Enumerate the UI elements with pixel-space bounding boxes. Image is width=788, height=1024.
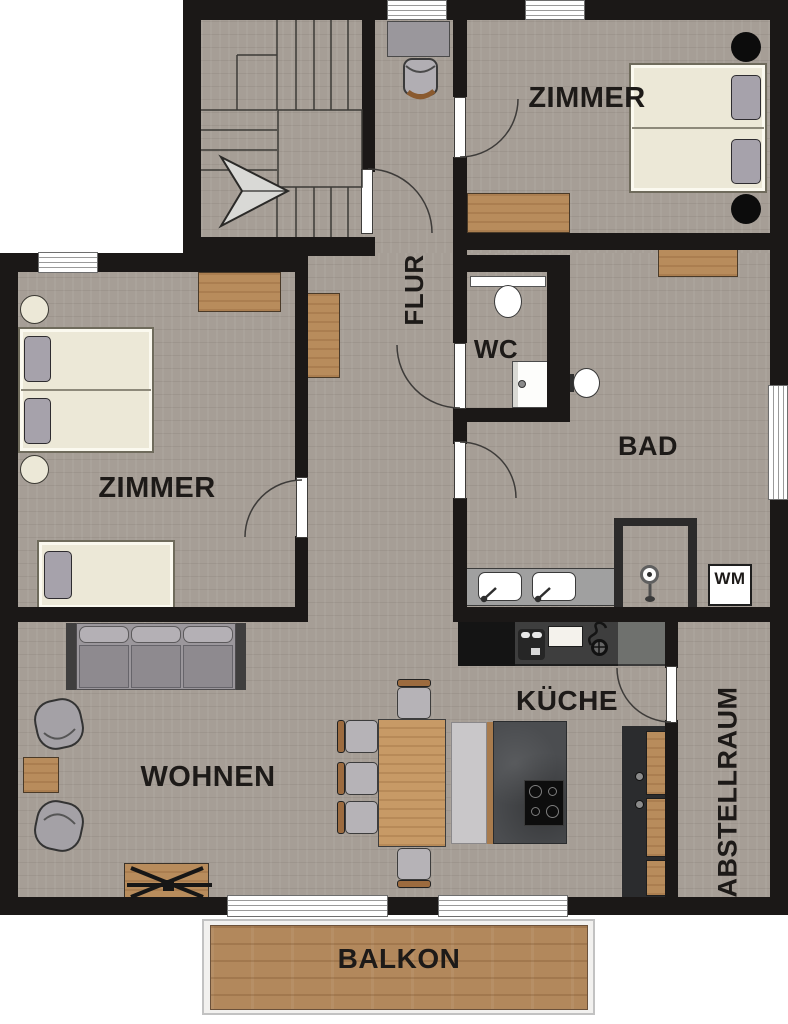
wall (453, 408, 570, 422)
burner (546, 805, 559, 818)
stove-dial (591, 639, 608, 656)
sofa-seat-cushion (131, 645, 181, 688)
wall (0, 607, 308, 622)
window (38, 252, 98, 273)
tall-cabinet (622, 726, 668, 898)
pillow (731, 75, 761, 120)
side-table (23, 757, 59, 793)
counter-corner (618, 622, 665, 666)
stool-top (731, 32, 761, 62)
dresser (198, 272, 281, 312)
bed-divider (21, 389, 151, 391)
hall-cabinet (307, 293, 340, 378)
chair-seat (397, 687, 431, 719)
washing-machine-label: WM (710, 569, 750, 589)
coffee-machine (518, 629, 545, 660)
folding-table (124, 863, 209, 901)
pillow (24, 398, 51, 444)
sofa-seat-cushion (79, 645, 129, 688)
door-leaf-zimmer-top (454, 97, 466, 158)
shower-wall (614, 518, 623, 607)
wall (665, 622, 678, 668)
pillow (24, 336, 51, 382)
sink (532, 572, 576, 601)
nightstand (20, 295, 49, 324)
door-leaf-stairs (361, 169, 373, 234)
sofa-back-cushion (131, 626, 181, 643)
wall (547, 255, 570, 422)
burner (531, 807, 540, 816)
sofa-back-cushion (183, 626, 233, 643)
sofa-armrest (66, 623, 76, 690)
kitchen-sink (548, 626, 583, 647)
chair-seat (397, 848, 431, 880)
cabinet-door (646, 731, 667, 795)
pillow (44, 551, 72, 599)
bed-divider (632, 127, 764, 129)
coffee-machine-tray (531, 648, 540, 655)
sofa-armrest (236, 623, 246, 690)
nightstand (20, 455, 49, 484)
room-label-abstellraum: ABSTELLRAUM (708, 700, 748, 885)
sink (478, 572, 522, 601)
wall (362, 20, 375, 172)
room-label-balkon: BALKON (319, 944, 479, 974)
wall (453, 233, 788, 250)
wall (453, 498, 467, 607)
chair (337, 801, 345, 834)
room-label-wc: WC (466, 335, 526, 363)
chair (337, 762, 345, 795)
chair-seat (345, 801, 378, 834)
room-label-wohnen: WOHNEN (128, 762, 288, 792)
wall (183, 0, 788, 20)
wall (453, 20, 467, 97)
basin-faucet-icon (518, 380, 526, 388)
washing-machine: WM (708, 564, 752, 606)
chair-seat (345, 762, 378, 795)
stool-bottom (731, 194, 761, 224)
coffee-machine-top (521, 632, 530, 638)
shower-head-center (647, 572, 652, 577)
toilet (494, 285, 522, 318)
wall (295, 253, 308, 480)
knob (635, 800, 644, 809)
window (387, 0, 447, 20)
door-leaf-bad (454, 441, 466, 499)
wall (453, 607, 788, 622)
room-label-bad: BAD (598, 432, 698, 460)
desk (387, 21, 450, 57)
bad-sideboard (658, 248, 738, 277)
floorplan-canvas: WM (0, 0, 788, 1024)
wall (183, 0, 201, 256)
chair (397, 880, 431, 888)
balcony-sliding-door (438, 895, 568, 917)
door-leaf-wc (454, 343, 466, 409)
shower-head-icon (640, 565, 659, 584)
wall (0, 897, 788, 915)
burner (529, 785, 542, 798)
chair-seat (345, 720, 378, 753)
wall (453, 272, 467, 343)
burner (548, 787, 557, 796)
sofa-back-cushion (79, 626, 129, 643)
shower-wall (688, 518, 697, 607)
bench (451, 722, 487, 844)
door-leaf-zimmer-left (296, 477, 308, 538)
window (525, 0, 585, 20)
wall (453, 408, 467, 444)
pillow (731, 139, 761, 184)
wall-hung-toilet (573, 368, 600, 398)
wall (665, 720, 678, 897)
office-chair (403, 58, 438, 96)
coffee-machine-top (532, 632, 542, 638)
sofa-seat-cushion (183, 645, 233, 688)
sideboard (467, 193, 570, 233)
cabinet-door (646, 860, 667, 896)
chair (337, 720, 345, 753)
room-label-zimmer-top: ZIMMER (517, 83, 657, 113)
shower-wall (614, 518, 697, 526)
room-label-flur: FLUR (400, 255, 428, 325)
balcony-sliding-door (227, 895, 388, 917)
wall (0, 253, 18, 915)
hand-basin (512, 361, 549, 408)
cabinet-door (646, 798, 667, 857)
door-leaf-abstellraum (666, 666, 677, 723)
room-label-zimmer-left: ZIMMER (87, 473, 227, 503)
chair (397, 679, 431, 687)
knob (635, 772, 644, 781)
room-label-kueche: KÜCHE (487, 686, 647, 716)
dining-table (378, 719, 446, 847)
cooktop (524, 780, 564, 826)
window (768, 385, 788, 500)
